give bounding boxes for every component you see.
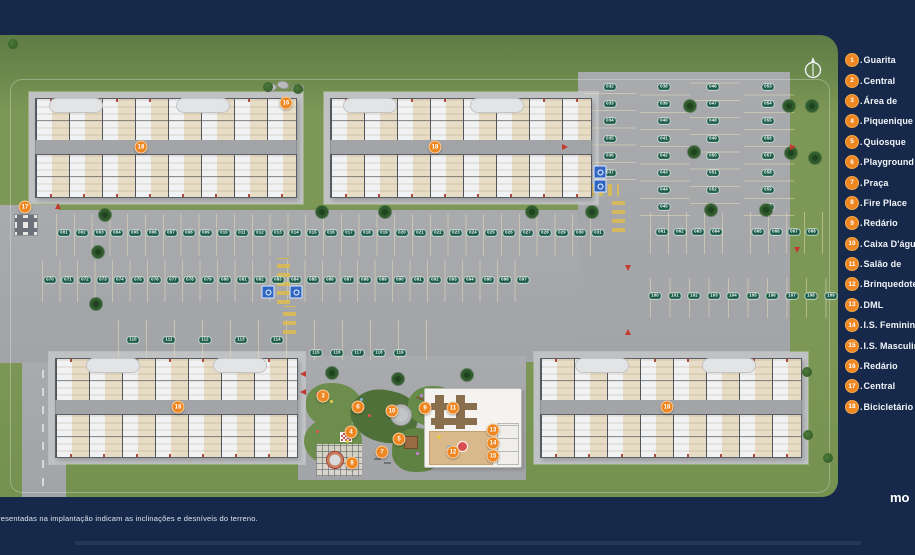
bush-tree <box>293 84 303 94</box>
parking-space-label: 054 <box>762 101 775 108</box>
legend-item-label: Central <box>864 381 896 391</box>
legend-item-number: 8 <box>845 196 859 210</box>
parking-space-label: 059 <box>762 187 775 194</box>
parking-space-label: 033 <box>604 101 617 108</box>
parking-space-label: 118 <box>373 349 386 356</box>
legend-item-number: 16 <box>845 359 859 373</box>
amenity-badge: 9 <box>419 402 432 415</box>
parking-space-label: 023 <box>449 229 462 236</box>
parking-space-label: 030 <box>574 229 587 236</box>
corridor-roof <box>703 359 755 372</box>
parking-space-label: 088 <box>359 276 372 283</box>
palm-tree <box>315 205 329 219</box>
parking-space-label: 044 <box>658 187 671 194</box>
parking-space-label: 097 <box>516 276 529 283</box>
amenity-badge: 3 <box>317 390 330 403</box>
bush-tree <box>823 453 833 463</box>
amenity-badge: 15 <box>487 450 500 463</box>
legend-item-number: 2 <box>845 74 859 88</box>
palm-tree <box>683 99 697 113</box>
parking-space-label: 058 <box>762 169 775 176</box>
legend-item-number: 11 <box>845 257 859 271</box>
corridor-roof <box>87 359 139 372</box>
amenity-badge: 16 <box>280 97 293 110</box>
parking-space-label: 113 <box>235 336 248 343</box>
parking-space-label: 106 <box>766 292 779 299</box>
parking-space-label: 112 <box>199 336 212 343</box>
legend-item-number: 10 <box>845 237 859 251</box>
legend-item-label: DML <box>864 300 884 310</box>
site-plan-page: 0010020030040050060070080090100110120130… <box>0 0 915 555</box>
parking-space-label: 038 <box>658 83 671 90</box>
palm-tree <box>805 99 819 113</box>
slope-arrow-icon <box>300 371 306 377</box>
parking-space-label: 035 <box>604 135 617 142</box>
parking-space-label: 026 <box>503 229 516 236</box>
amenity-badge: 10 <box>386 405 399 418</box>
parking-space-label: 042 <box>658 152 671 159</box>
legend-separator: . <box>860 55 863 65</box>
parking-space-label: 073 <box>96 276 109 283</box>
legend-item: 1.Guarita <box>845 50 915 70</box>
bush-tree <box>8 39 18 49</box>
parking-space-label: 064 <box>710 228 723 235</box>
slope-arrow-icon <box>562 144 568 150</box>
amenity-badge: 8 <box>346 457 359 470</box>
parking-space-label: 063 <box>692 228 705 235</box>
parking-space-label: 096 <box>499 276 512 283</box>
legend-item-label: Quiosque <box>864 137 906 147</box>
parking-space-label: 031 <box>592 229 605 236</box>
amenity-badge: 4 <box>345 426 358 439</box>
parking-space-label: 020 <box>396 229 409 236</box>
parking-space-label: 102 <box>688 292 701 299</box>
parking-space-label: 095 <box>481 276 494 283</box>
legend-item: 10.Caixa D'água <box>845 234 915 254</box>
legend-separator: . <box>860 239 863 249</box>
legend-item-label: Bicicletário <box>864 402 914 412</box>
flower-dot <box>368 414 371 417</box>
legend-separator: . <box>860 361 863 371</box>
legend-item: 9.Redário <box>845 213 915 233</box>
parking-space-label: 017 <box>342 229 355 236</box>
amenity-badge: 7 <box>376 446 389 459</box>
slope-arrow-icon <box>790 144 796 150</box>
palm-tree <box>98 208 112 222</box>
parking-space-label: 056 <box>762 135 775 142</box>
parking-space-label: 024 <box>467 229 480 236</box>
parking-space-label: 082 <box>254 276 267 283</box>
parking-space-label: 117 <box>352 349 365 356</box>
legend-separator: . <box>860 218 863 228</box>
palm-tree <box>378 205 392 219</box>
parking-space-label: 068 <box>806 228 819 235</box>
legend-item-label: Área de <box>864 96 898 106</box>
parking-space-label: 022 <box>431 229 444 236</box>
parking-space-label: 034 <box>604 118 617 125</box>
accessible-parking-icon <box>262 286 275 299</box>
legend-item-label: Caixa D'água <box>864 239 915 249</box>
legend-item: 16.Redário <box>845 356 915 376</box>
legend-item-number: 14 <box>845 318 859 332</box>
parking-space-label: 070 <box>44 276 57 283</box>
legend-item: 2.Central <box>845 70 915 90</box>
parking-space-label: 051 <box>707 169 720 176</box>
corridor-roof <box>471 99 523 112</box>
legend-separator: . <box>860 157 863 167</box>
legend-item-number: 18 <box>845 400 859 414</box>
parking-space-label: 003 <box>93 229 106 236</box>
legend-panel: 1.Guarita2.Central3.Área de4.Piquenique5… <box>845 44 915 435</box>
palm-tree <box>759 203 773 217</box>
parking-space-label: 015 <box>307 229 320 236</box>
parking-space-label: 005 <box>129 229 142 236</box>
parking-space-label: 084 <box>289 276 302 283</box>
parking-space-label: 048 <box>707 118 720 125</box>
corridor-roof <box>50 99 102 112</box>
parking-space-label: 116 <box>331 349 344 356</box>
parking-space-label: 039 <box>658 101 671 108</box>
kids-toy <box>437 435 441 439</box>
parking-space-label: 101 <box>668 292 681 299</box>
parking-space-label: 087 <box>341 276 354 283</box>
unit-row <box>35 154 297 198</box>
parking-space-label: 072 <box>79 276 92 283</box>
flower-dot <box>416 452 419 455</box>
building-badge: 18 <box>661 401 674 414</box>
bush-tree <box>802 367 812 377</box>
building-block-a <box>35 98 297 198</box>
parking-space-label: 061 <box>656 228 669 235</box>
legend-item-label: I.S. Masculino <box>864 341 915 351</box>
palm-tree <box>325 366 339 380</box>
parking-space-label: 089 <box>376 276 389 283</box>
parking-space-label: 119 <box>394 349 407 356</box>
slope-arrow-icon <box>300 389 306 395</box>
legend-separator: . <box>860 198 863 208</box>
palm-tree <box>687 145 701 159</box>
parking-space-label: 090 <box>394 276 407 283</box>
legend-item-label: Redário <box>864 361 898 371</box>
bush-tree <box>263 82 273 92</box>
palm-tree <box>91 245 105 259</box>
amenity-badge: 17 <box>19 201 32 214</box>
parking-space-label: 114 <box>271 336 284 343</box>
parking-space-label: 043 <box>658 169 671 176</box>
party-hall-building <box>424 388 522 468</box>
legend-item-number: 9 <box>845 216 859 230</box>
parking-space-label: 100 <box>649 292 662 299</box>
parking-space-label: 093 <box>446 276 459 283</box>
palm-tree <box>585 205 599 219</box>
parking-space-label: 081 <box>236 276 249 283</box>
amenity-badge: 14 <box>487 437 500 450</box>
unit-row <box>540 414 802 458</box>
legend-item: 15.I.S. Masculino <box>845 335 915 355</box>
parking-space-label: 077 <box>166 276 179 283</box>
parking-space-label: 062 <box>674 228 687 235</box>
legend-item: 7.Praça <box>845 172 915 192</box>
parking-space-label: 071 <box>61 276 74 283</box>
parking-space-label: 014 <box>289 229 302 236</box>
amenity-badge: 6 <box>352 401 365 414</box>
corridor-roof <box>344 99 396 112</box>
corridor-roof <box>214 359 266 372</box>
flower-dot <box>316 430 319 433</box>
amenity-badge: 12 <box>447 446 460 459</box>
palm-tree <box>525 205 539 219</box>
legend-item-label: Piquenique <box>864 116 914 126</box>
legend-item-number: 17 <box>845 379 859 393</box>
parking-space-label: 080 <box>219 276 232 283</box>
corridor-roof <box>177 99 229 112</box>
accessible-parking-icon <box>290 286 303 299</box>
legend-item-number: 12 <box>845 277 859 291</box>
legend-item-label: Praça <box>864 178 889 188</box>
palm-tree <box>89 297 103 311</box>
fire-pit <box>326 451 344 469</box>
parking-space-label: 075 <box>131 276 144 283</box>
parking-space-label: 078 <box>184 276 197 283</box>
parking-space-label: 018 <box>360 229 373 236</box>
unit-row <box>55 414 298 458</box>
parking-space-label: 109 <box>824 292 837 299</box>
parking-space-label: 074 <box>114 276 127 283</box>
legend-item: 14.I.S. Feminino <box>845 315 915 335</box>
parking-space-label: 012 <box>253 229 266 236</box>
parking-space-label: 092 <box>429 276 442 283</box>
parking-space-label: 016 <box>325 229 338 236</box>
slope-arrow-icon <box>625 265 631 271</box>
bench <box>384 462 391 464</box>
parking-space-label: 065 <box>752 228 765 235</box>
parking-space-label: 083 <box>271 276 284 283</box>
legend-separator: . <box>860 76 863 86</box>
parking-space-label: 103 <box>707 292 720 299</box>
parking-space-label: 086 <box>324 276 337 283</box>
accessible-parking-icon <box>594 166 607 179</box>
parking-space-label: 013 <box>271 229 284 236</box>
legend-item-number: 7 <box>845 176 859 190</box>
legend-item-label: Playground <box>864 157 915 167</box>
parking-space-label: 001 <box>58 229 71 236</box>
legend-item-number: 1 <box>845 53 859 67</box>
legend-item-label: Guarita <box>864 55 896 65</box>
bush-tree <box>803 430 813 440</box>
legend-separator: . <box>860 320 863 330</box>
palm-tree <box>704 203 718 217</box>
parking-space-label: 104 <box>727 292 740 299</box>
slope-arrow-icon <box>625 329 631 335</box>
legend-item: 5.Quiosque <box>845 132 915 152</box>
legend-item: 8.Fire Place <box>845 193 915 213</box>
legend-item: 6.Playground <box>845 152 915 172</box>
parking-space-label: 046 <box>707 83 720 90</box>
palm-tree <box>391 372 405 386</box>
legend-item-number: 5 <box>845 135 859 149</box>
parking-space-label: 040 <box>658 118 671 125</box>
legend-item: 3.Área de <box>845 91 915 111</box>
parking-space-label: 008 <box>182 229 195 236</box>
parking-space-label: 050 <box>707 152 720 159</box>
unit-row <box>330 154 592 198</box>
legend-separator: . <box>860 259 863 269</box>
parking-space-label: 006 <box>147 229 160 236</box>
parking-space-label: 052 <box>707 187 720 194</box>
parking-space-label: 007 <box>164 229 177 236</box>
parking-space-label: 004 <box>111 229 124 236</box>
legend-item: 13.DML <box>845 295 915 315</box>
legend-item-number: 15 <box>845 339 859 353</box>
parking-space-label: 110 <box>127 336 140 343</box>
legend-separator: . <box>860 381 863 391</box>
palm-tree <box>782 99 796 113</box>
building-block-b <box>330 98 592 198</box>
brand-logo: mo <box>890 490 910 505</box>
building-badge: 18 <box>429 141 442 154</box>
legend-separator: . <box>860 137 863 147</box>
legend-item: 11.Salão de <box>845 254 915 274</box>
footer-note: resentadas na implantação indicam as inc… <box>0 514 258 523</box>
parking-space-label: 021 <box>414 229 427 236</box>
parking-space-label: 025 <box>485 229 498 236</box>
amenity-badge: 11 <box>447 402 460 415</box>
parking-space-label: 108 <box>805 292 818 299</box>
parking-space-label: 032 <box>604 83 617 90</box>
parking-space-label: 067 <box>788 228 801 235</box>
parking-space-label: 066 <box>770 228 783 235</box>
parking-space-label: 105 <box>746 292 759 299</box>
palm-tree <box>460 368 474 382</box>
parking-space-label: 111 <box>163 336 176 343</box>
legend-item-label: Fire Place <box>864 198 908 208</box>
parking-space-label: 041 <box>658 135 671 142</box>
legend-separator: . <box>860 116 863 126</box>
legend-item-label: I.S. Feminino <box>864 320 915 330</box>
kiosk-structure <box>404 436 418 449</box>
legend-item-label: Brinquedoteca <box>864 279 915 289</box>
parking-space-label: 009 <box>200 229 213 236</box>
parking-space-label: 057 <box>762 152 775 159</box>
parking-space-label: 079 <box>201 276 214 283</box>
bottom-divider <box>75 541 861 545</box>
legend-item-label: Salão de <box>864 259 902 269</box>
legend-separator: . <box>860 178 863 188</box>
legend-separator: . <box>860 300 863 310</box>
legend-item-number: 4 <box>845 114 859 128</box>
legend-separator: . <box>860 279 863 289</box>
parking-space-label: 085 <box>306 276 319 283</box>
parking-space-label: 076 <box>149 276 162 283</box>
parking-space-label: 047 <box>707 101 720 108</box>
palm-tree <box>808 151 822 165</box>
legend-item-label: Redário <box>864 218 898 228</box>
parking-space-label: 002 <box>75 229 88 236</box>
legend-item: 18.Bicicletário <box>845 397 915 417</box>
parking-space-label: 053 <box>762 83 775 90</box>
slope-arrow-icon <box>55 203 61 209</box>
legend-item: 12.Brinquedoteca <box>845 274 915 294</box>
central-structure <box>14 214 38 236</box>
parking-space-label: 107 <box>785 292 798 299</box>
amenity-badge: 5 <box>393 433 406 446</box>
building-badge: 18 <box>172 401 185 414</box>
service-rooms <box>497 423 519 465</box>
legend-separator: . <box>860 341 863 351</box>
legend-item-number: 3 <box>845 94 859 108</box>
building-badge: 18 <box>135 141 148 154</box>
legend-separator: . <box>860 402 863 412</box>
slope-arrow-icon <box>794 247 800 253</box>
legend-item-number: 6 <box>845 155 859 169</box>
parking-space-label: 027 <box>520 229 533 236</box>
parking-space-label: 036 <box>604 152 617 159</box>
amenity-badge: 13 <box>487 424 500 437</box>
legend-item: 4.Piquenique <box>845 111 915 131</box>
accessible-parking-icon <box>594 180 607 193</box>
parking-space-label: 115 <box>310 349 323 356</box>
parking-space-label: 010 <box>218 229 231 236</box>
legend-separator: . <box>860 96 863 106</box>
parking-space-label: 019 <box>378 229 391 236</box>
parking-space-label: 094 <box>464 276 477 283</box>
parking-space-label: 029 <box>556 229 569 236</box>
parking-space-label: 011 <box>236 229 249 236</box>
parking-space-label: 091 <box>411 276 424 283</box>
parking-space-label: 045 <box>658 204 671 211</box>
legend-item-label: Central <box>864 76 896 86</box>
north-compass-icon <box>802 55 824 81</box>
corridor-roof <box>576 359 628 372</box>
flower-dot <box>346 440 349 443</box>
flower-dot <box>330 400 333 403</box>
flower-dot <box>420 394 423 397</box>
legend-item-number: 13 <box>845 298 859 312</box>
parking-space-label: 049 <box>707 135 720 142</box>
legend-item: 17.Central <box>845 376 915 396</box>
parking-space-label: 028 <box>538 229 551 236</box>
parking-space-label: 055 <box>762 118 775 125</box>
